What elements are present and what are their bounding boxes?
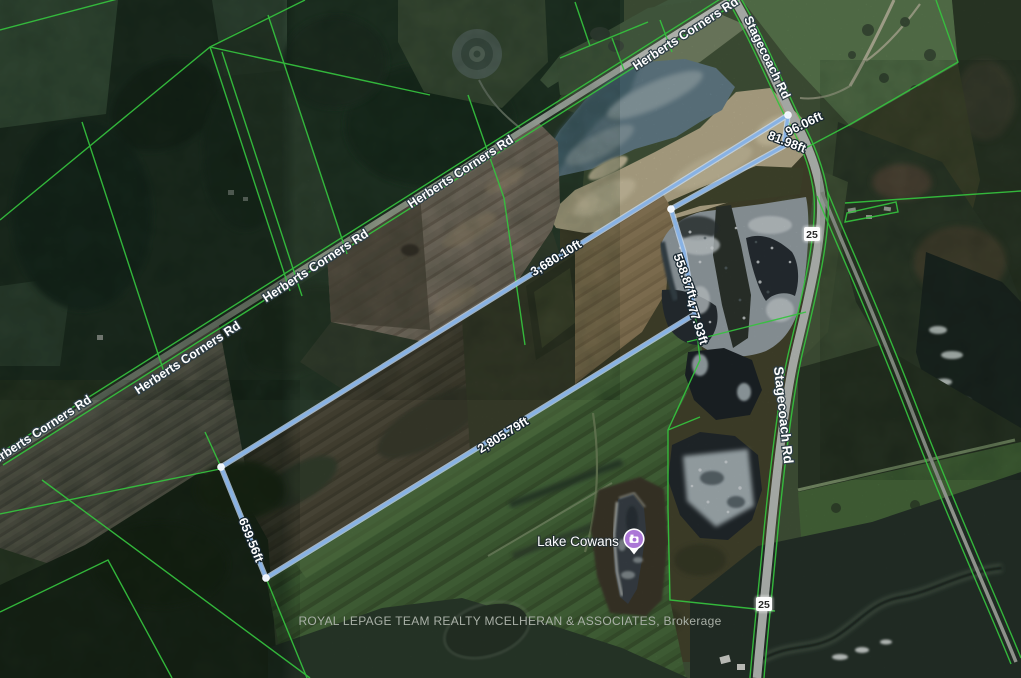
svg-text:25: 25 — [806, 229, 818, 241]
svg-text:25: 25 — [758, 599, 770, 611]
svg-text:Lake Cowans: Lake Cowans — [537, 534, 619, 549]
svg-text:ROYAL LEPAGE TEAM REALTY MCELH: ROYAL LEPAGE TEAM REALTY MCELHERAN & ASS… — [298, 614, 721, 628]
